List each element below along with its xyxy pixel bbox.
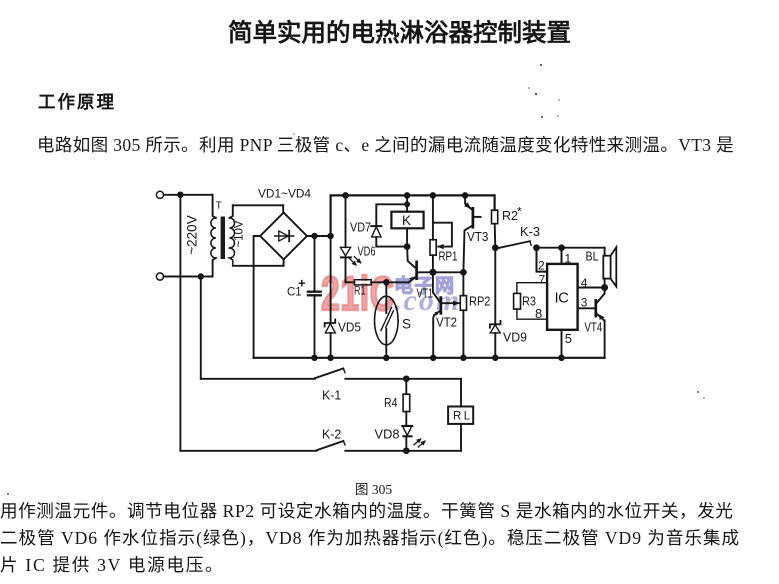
svg-text:~220V: ~220V xyxy=(185,215,200,254)
svg-text:3: 3 xyxy=(581,296,588,310)
svg-text:VT4: VT4 xyxy=(585,321,603,335)
svg-text:RL: RL xyxy=(453,411,473,423)
svg-text:VT2: VT2 xyxy=(436,316,457,330)
svg-text:~10V: ~10V xyxy=(234,220,246,248)
svg-text:VD6: VD6 xyxy=(358,245,376,259)
svg-text:K-1: K-1 xyxy=(322,389,341,403)
svg-text:S: S xyxy=(402,317,411,332)
svg-text:2: 2 xyxy=(538,259,545,273)
svg-text:8: 8 xyxy=(535,306,542,321)
svg-text:5: 5 xyxy=(565,331,572,346)
svg-text:IC: IC xyxy=(555,290,570,307)
svg-text:VT3: VT3 xyxy=(467,230,488,244)
svg-text:R1: R1 xyxy=(354,284,366,298)
svg-text:T: T xyxy=(216,200,223,212)
svg-text:7: 7 xyxy=(539,273,546,287)
svg-text:R3: R3 xyxy=(522,295,536,309)
svg-text:BL: BL xyxy=(586,250,599,264)
svg-text:4: 4 xyxy=(581,276,588,290)
svg-text:K: K xyxy=(402,213,411,228)
svg-text:VT1: VT1 xyxy=(417,287,434,301)
svg-text:R2: R2 xyxy=(502,209,518,223)
svg-text:VD5: VD5 xyxy=(338,321,361,335)
svg-text:*: * xyxy=(517,205,522,219)
svg-text:VD9: VD9 xyxy=(503,331,527,345)
svg-text:VD1~VD4: VD1~VD4 xyxy=(258,187,311,201)
svg-text:C1: C1 xyxy=(287,287,302,299)
svg-text:RP2: RP2 xyxy=(469,295,490,309)
svg-text:VD7: VD7 xyxy=(350,221,371,235)
svg-text:K-2: K-2 xyxy=(322,428,341,442)
svg-text:K-3: K-3 xyxy=(520,225,540,239)
svg-text:RP1: RP1 xyxy=(439,250,458,264)
svg-text:1: 1 xyxy=(565,252,572,266)
svg-text:R4: R4 xyxy=(384,396,398,410)
svg-text:VD8: VD8 xyxy=(375,428,400,442)
